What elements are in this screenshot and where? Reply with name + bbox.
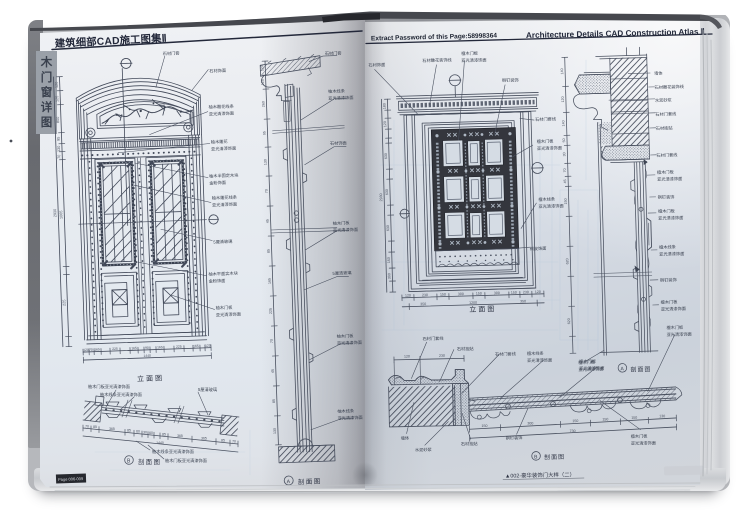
svg-text:800: 800 [56, 117, 60, 123]
svg-text:5厘清玻璃: 5厘清玻璃 [332, 269, 351, 277]
svg-text:45: 45 [266, 219, 270, 223]
svg-text:檀木线条: 檀木线条 [538, 195, 556, 202]
svg-text:85: 85 [267, 249, 271, 253]
svg-text:125: 125 [55, 96, 59, 102]
svg-text:石材门套: 石材门套 [163, 50, 181, 58]
svg-text:85: 85 [127, 429, 131, 433]
svg-text:225: 225 [269, 308, 273, 314]
svg-text:165: 165 [157, 345, 163, 349]
svg-text:120: 120 [561, 96, 565, 102]
svg-text:225: 225 [112, 347, 118, 351]
svg-text:1440: 1440 [143, 354, 151, 358]
svg-text:130: 130 [273, 428, 277, 434]
svg-text:225: 225 [62, 299, 66, 305]
svg-text:1440: 1440 [156, 441, 164, 445]
svg-text:140: 140 [561, 120, 565, 126]
svg-text:铜钉装饰: 铜钉装饰 [506, 434, 523, 441]
svg-text:亚光清漆饰面: 亚光清漆饰面 [657, 175, 682, 183]
svg-text:金粉饰面: 金粉饰面 [209, 179, 226, 187]
svg-text:45: 45 [271, 369, 275, 373]
svg-text:85: 85 [221, 438, 225, 442]
svg-text:门: 门 [41, 70, 53, 84]
svg-text:檀木门板: 檀木门板 [537, 137, 555, 144]
svg-text:70: 70 [563, 168, 567, 172]
svg-text:230: 230 [422, 293, 428, 297]
svg-text:300: 300 [527, 421, 533, 425]
svg-text:亚光清漆饰面: 亚光清漆饰面 [328, 94, 353, 102]
svg-text:125: 125 [261, 79, 265, 85]
svg-text:柚木雕花线条: 柚木雕花线条 [212, 194, 238, 202]
svg-text:150: 150 [481, 424, 487, 428]
svg-text:130: 130 [57, 146, 61, 152]
svg-text:亚光清漆饰面: 亚光清漆饰面 [211, 145, 236, 153]
svg-text:150: 150 [572, 419, 578, 423]
svg-text:石材雕花装饰线: 石材雕花装饰线 [422, 56, 452, 64]
svg-text:石材饰面: 石材饰面 [330, 139, 347, 147]
svg-text:2930: 2930 [379, 193, 383, 201]
svg-text:620: 620 [565, 258, 569, 264]
svg-text:60: 60 [149, 431, 153, 435]
svg-text:120: 120 [383, 121, 387, 127]
svg-text:70: 70 [232, 440, 236, 444]
svg-text:130: 130 [263, 159, 267, 165]
svg-text:亚光清漆饰面: 亚光清漆饰面 [661, 305, 686, 313]
svg-text:180: 180 [383, 103, 387, 109]
svg-text:柚木门板: 柚木门板 [333, 219, 351, 227]
svg-text:铜钉装饰: 铜钉装饰 [502, 76, 519, 83]
svg-text:檀木门板: 檀木门板 [631, 433, 649, 440]
svg-text:剖面图: 剖面图 [298, 476, 322, 486]
svg-text:120: 120 [55, 82, 59, 88]
svg-text:亚光清漆饰面: 亚光清漆饰面 [337, 339, 362, 347]
svg-text:120: 120 [405, 294, 411, 298]
svg-text:石材挂贴: 石材挂贴 [656, 124, 673, 131]
svg-text:亚光清漆饰面: 亚光清漆饰面 [666, 331, 691, 339]
svg-text:铜皮饰面: 铜皮饰面 [530, 245, 547, 252]
svg-text:建筑细部CAD施工图集Ⅱ: 建筑细部CAD施工图集Ⅱ [54, 32, 168, 51]
svg-text:365: 365 [109, 427, 115, 431]
svg-text:柚木半固定木块: 柚木半固定木块 [209, 172, 239, 180]
svg-text:铜钉装饰: 铜钉装饰 [660, 276, 677, 283]
svg-text:120: 120 [260, 65, 264, 71]
svg-text:檀木门板: 檀木门板 [660, 298, 678, 305]
svg-text:柚木门板亚光清漆饰面: 柚木门板亚光清漆饰面 [165, 457, 207, 464]
svg-text:柚木门板: 柚木门板 [337, 332, 355, 340]
svg-text:60: 60 [136, 430, 140, 434]
svg-text:柚木门板亚光清漆饰面: 柚木门板亚光清漆饰面 [88, 383, 130, 390]
svg-text:亚光清漆饰面: 亚光清漆饰面 [209, 110, 234, 118]
svg-text:85: 85 [272, 399, 276, 403]
svg-text:水泥砂浆: 水泥砂浆 [415, 446, 433, 453]
svg-text:墙体: 墙体 [401, 435, 410, 442]
svg-text:檀木线条: 檀木线条 [659, 243, 677, 250]
svg-text:石材饰面: 石材饰面 [209, 67, 226, 75]
svg-text:45: 45 [563, 179, 567, 183]
svg-text:柚木门板: 柚木门板 [216, 304, 234, 312]
svg-text:石材饰面: 石材饰面 [368, 61, 385, 68]
svg-text:130: 130 [659, 414, 665, 418]
svg-text:亚光清漆饰面: 亚光清漆饰面 [337, 414, 362, 422]
svg-text:柚木线条亚光清漆饰面: 柚木线条亚光清漆饰面 [100, 391, 142, 398]
svg-text:剖面图: 剖面图 [138, 457, 161, 466]
svg-text:石材门套线: 石材门套线 [655, 110, 677, 118]
svg-text:檀木门板: 檀木门板 [658, 207, 676, 214]
svg-text:窗: 窗 [41, 85, 53, 99]
svg-text:石材门套线: 石材门套线 [535, 115, 557, 123]
svg-text:150: 150 [511, 291, 517, 295]
svg-text:85: 85 [162, 432, 166, 436]
svg-text:亚光清漆饰面: 亚光清漆饰面 [659, 250, 684, 258]
svg-text:水泥砂浆: 水泥砂浆 [655, 96, 673, 103]
svg-text:亚光清漆饰面: 亚光清漆饰面 [658, 214, 683, 222]
svg-text:亚光清漆饰面: 亚光清漆饰面 [212, 201, 237, 209]
svg-text:亚光清漆饰面: 亚光清漆饰面 [631, 439, 656, 447]
svg-text:390: 390 [387, 273, 391, 279]
svg-text:30: 30 [562, 152, 566, 156]
svg-text:165: 165 [94, 347, 100, 351]
svg-text:柚木线条: 柚木线条 [337, 407, 355, 415]
svg-text:石材挂贴: 石材挂贴 [461, 440, 478, 447]
svg-text:亚光清漆饰面: 亚光清漆饰面 [216, 311, 241, 319]
svg-text:120: 120 [205, 344, 211, 348]
svg-text:B: B [127, 459, 131, 465]
svg-text:95: 95 [57, 137, 61, 141]
svg-text:365: 365 [177, 434, 183, 438]
svg-text:70: 70 [265, 189, 269, 193]
svg-text:金粉饰面: 金粉饰面 [209, 277, 226, 285]
svg-text:2930: 2930 [53, 209, 57, 218]
svg-text:150: 150 [631, 416, 637, 420]
svg-text:150: 150 [602, 417, 608, 421]
svg-text:亚光清漆饰面: 亚光清漆饰面 [333, 226, 358, 234]
svg-text:150: 150 [476, 292, 482, 296]
svg-text:300: 300 [458, 292, 464, 296]
svg-text:230: 230 [523, 290, 529, 294]
svg-text:亚光清漆饰面: 亚光清漆饰面 [527, 357, 552, 365]
svg-text:630: 630 [385, 189, 389, 195]
svg-text:620: 620 [567, 318, 571, 324]
svg-text:30: 30 [143, 430, 147, 434]
svg-text:300: 300 [494, 291, 500, 295]
svg-text:1200: 1200 [469, 301, 477, 305]
svg-text:1065: 1065 [59, 210, 63, 219]
svg-text:350: 350 [520, 299, 526, 303]
svg-text:5厘清玻璃: 5厘清玻璃 [213, 238, 232, 246]
svg-text:230: 230 [439, 354, 445, 358]
svg-text:檀木线条: 檀木线条 [527, 350, 545, 357]
svg-text:详: 详 [41, 100, 53, 114]
svg-text:图: 图 [41, 115, 53, 129]
svg-text:立面图: 立面图 [469, 304, 496, 314]
svg-text:85: 85 [93, 425, 97, 429]
svg-text:A: A [287, 479, 291, 485]
svg-text:120: 120 [535, 290, 541, 294]
svg-text:150: 150 [564, 198, 568, 204]
svg-text:立面图: 立面图 [137, 373, 164, 383]
svg-text:95: 95 [262, 131, 266, 135]
svg-text:70: 70 [57, 155, 61, 159]
svg-text:150: 150 [440, 293, 446, 297]
svg-text:剖面图: 剖面图 [544, 453, 565, 461]
svg-text:165: 165 [193, 344, 199, 348]
svg-text:石材门套线: 石材门套线 [423, 335, 445, 342]
svg-text:墙体: 墙体 [654, 70, 663, 77]
svg-text:檀木门板: 檀木门板 [461, 50, 479, 57]
svg-text:150: 150 [387, 257, 391, 263]
svg-text:柚木雕花线条: 柚木雕花线条 [209, 103, 235, 111]
svg-text:70: 70 [85, 424, 89, 428]
svg-text:165: 165 [131, 346, 137, 350]
svg-text:165: 165 [268, 278, 272, 284]
svg-text:石材门套线: 石材门套线 [656, 151, 678, 159]
svg-text:70: 70 [89, 348, 93, 352]
svg-text:70: 70 [270, 339, 274, 343]
svg-text:檀木门板: 檀木门板 [666, 324, 684, 331]
svg-text:柚木线条亚光清漆饰面: 柚木线条亚光清漆饰面 [152, 448, 194, 455]
svg-text:剖面图: 剖面图 [630, 365, 651, 374]
svg-text:140: 140 [560, 68, 564, 74]
svg-text:350: 350 [420, 302, 426, 306]
svg-text:260: 260 [261, 101, 265, 107]
svg-text:120: 120 [404, 355, 410, 359]
svg-text:225: 225 [176, 345, 182, 349]
svg-text:石材门套线: 石材门套线 [495, 350, 517, 357]
svg-text:90: 90 [145, 346, 149, 350]
svg-text:檀木门板: 檀木门板 [657, 168, 675, 175]
svg-text:石材雕花装饰线: 石材雕花装饰线 [654, 83, 684, 91]
svg-text:柚木雕花: 柚木雕花 [211, 138, 228, 146]
svg-text:5厘清玻璃: 5厘清玻璃 [198, 386, 217, 393]
svg-text:630: 630 [386, 225, 390, 231]
svg-text:石材挂贴: 石材挂贴 [457, 345, 474, 352]
svg-text:50: 50 [562, 138, 566, 142]
svg-text:柚木线条: 柚木线条 [328, 87, 346, 95]
svg-text:Page 006-009: Page 006-009 [58, 476, 84, 482]
svg-text:柚木平面实木块: 柚木平面实木块 [208, 270, 238, 278]
svg-text:铜钉装饰: 铜钉装饰 [658, 193, 675, 200]
svg-text:亚光清漆饰面: 亚光清漆饰面 [537, 144, 562, 152]
svg-text:木: 木 [40, 55, 53, 69]
svg-text:730: 730 [570, 429, 576, 433]
svg-text:亚光清漆饰面: 亚光清漆饰面 [461, 56, 486, 64]
svg-text:365: 365 [201, 436, 207, 440]
svg-text:630: 630 [384, 153, 388, 159]
